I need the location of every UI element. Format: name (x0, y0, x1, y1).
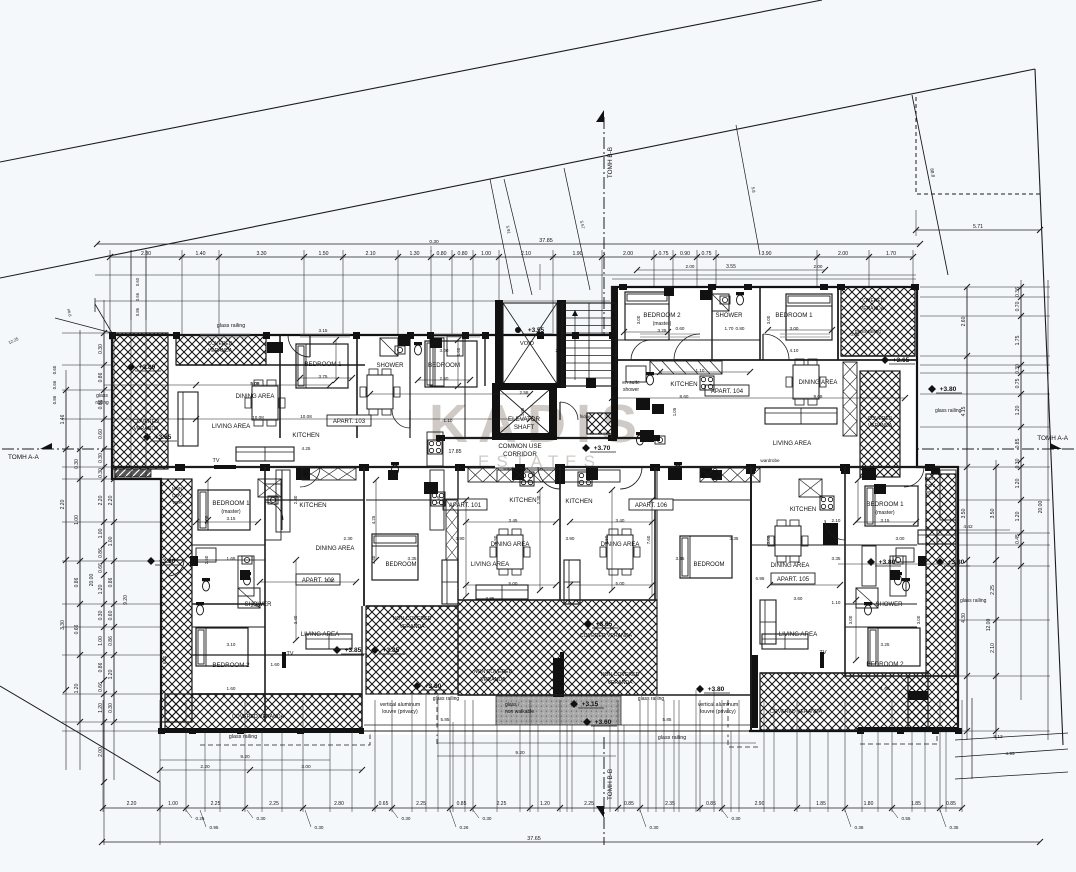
svg-text:2.25: 2.25 (416, 801, 426, 807)
svg-text:glass railing: glass railing (960, 598, 987, 604)
svg-text:glass railing: glass railing (935, 408, 962, 414)
svg-text:1.40: 1.40 (195, 251, 205, 257)
svg-text:1.10: 1.10 (832, 600, 841, 605)
svg-text:+3.80: +3.80 (159, 558, 176, 565)
svg-text:0.30: 0.30 (315, 825, 324, 830)
svg-text:APART. 101: APART. 101 (449, 503, 482, 509)
svg-text:LIVING AREA: LIVING AREA (471, 561, 510, 568)
svg-text:9.20: 9.20 (123, 595, 129, 605)
svg-text:0.30: 0.30 (98, 344, 104, 354)
svg-text:KITCHEN: KITCHEN (299, 502, 326, 509)
svg-text:VERANDA: VERANDA (208, 348, 233, 354)
svg-text:8.60: 8.60 (680, 394, 689, 399)
svg-text:3.35: 3.35 (730, 536, 739, 541)
svg-text:COVERED: COVERED (868, 416, 893, 422)
svg-text:3.90: 3.90 (761, 251, 771, 257)
svg-text:2.00: 2.00 (838, 251, 848, 257)
svg-text:1.60: 1.60 (881, 686, 890, 691)
svg-text:3.60: 3.60 (794, 596, 803, 601)
svg-text:0.86: 0.86 (74, 577, 80, 587)
svg-text:VERANDA: VERANDA (868, 423, 893, 429)
svg-text:APART. 105: APART. 105 (777, 577, 810, 583)
svg-text:1.60: 1.60 (456, 347, 461, 356)
svg-text:0.66: 0.66 (74, 624, 80, 634)
svg-text:0.85: 0.85 (706, 801, 716, 807)
svg-text:1.95: 1.95 (520, 407, 525, 416)
svg-text:6.20: 6.20 (162, 655, 167, 664)
svg-text:20.00: 20.00 (1038, 501, 1044, 514)
svg-text:louvre (privacy): louvre (privacy) (700, 709, 736, 715)
svg-text:COMMON USE: COMMON USE (498, 443, 541, 450)
svg-text:0.85: 0.85 (946, 801, 956, 807)
svg-text:3.75: 3.75 (319, 374, 328, 379)
svg-text:6.95: 6.95 (756, 576, 765, 581)
svg-text:KITCHEN: KITCHEN (670, 381, 697, 388)
svg-text:1.20: 1.20 (540, 801, 550, 807)
svg-text:0.30: 0.30 (429, 239, 439, 245)
svg-text:0.85: 0.85 (1015, 438, 1021, 448)
svg-text:ΤΟΜΗ Α-Α: ΤΟΜΗ Α-Α (8, 454, 40, 461)
svg-text:3.15: 3.15 (319, 328, 328, 333)
svg-text:2.30: 2.30 (344, 536, 353, 541)
svg-text:3.15: 3.15 (227, 516, 236, 521)
svg-text:1.00: 1.00 (98, 528, 104, 538)
svg-text:BEDROOM 2: BEDROOM 2 (866, 661, 904, 668)
svg-text:1.20: 1.20 (74, 683, 80, 693)
svg-text:0.66: 0.66 (98, 563, 104, 573)
svg-text:2.30: 2.30 (536, 495, 541, 504)
svg-text:0.36: 0.36 (1015, 287, 1021, 297)
svg-text:VERANDA: VERANDA (480, 677, 506, 683)
svg-text:5.08: 5.08 (251, 381, 260, 386)
svg-text:3.35: 3.35 (676, 556, 685, 561)
svg-text:0.66: 0.66 (52, 380, 57, 389)
svg-text:SHOWER: SHOWER (876, 602, 904, 608)
svg-text:0.35: 0.35 (950, 825, 959, 830)
svg-text:0.60: 0.60 (135, 277, 140, 286)
svg-text:4.42: 4.42 (963, 524, 973, 530)
svg-text:1.85: 1.85 (816, 801, 826, 807)
svg-text:1.05: 1.05 (672, 407, 677, 416)
svg-text:COVERED VERANDA: COVERED VERANDA (232, 714, 285, 720)
svg-text:+3.80: +3.80 (940, 386, 957, 393)
svg-text:1.00: 1.00 (74, 515, 80, 525)
svg-text:VERANDA: VERANDA (399, 624, 425, 630)
svg-text:0.30: 0.30 (650, 825, 659, 830)
svg-text:3.15: 3.15 (881, 518, 890, 523)
svg-text:3.00: 3.00 (766, 315, 771, 324)
svg-text:KITCHEN: KITCHEN (292, 432, 319, 439)
svg-text:SHOWER: SHOWER (377, 363, 405, 369)
svg-text:COVERED VERANDA: COVERED VERANDA (580, 633, 633, 639)
svg-text:glass railing: glass railing (658, 735, 686, 741)
svg-text:2.40: 2.40 (251, 603, 260, 608)
svg-text:0.86: 0.86 (52, 395, 57, 404)
svg-text:1.85: 1.85 (911, 801, 921, 807)
svg-text:0.80: 0.80 (457, 251, 467, 257)
svg-text:1.60: 1.60 (271, 662, 280, 667)
svg-text:glass /: glass / (505, 702, 520, 708)
svg-text:2.50: 2.50 (436, 495, 441, 504)
svg-text:2.35: 2.35 (665, 801, 675, 807)
svg-text:2.25: 2.25 (497, 801, 507, 807)
svg-text:1.46: 1.46 (60, 414, 66, 424)
svg-text:DINING AREA: DINING AREA (799, 380, 838, 386)
svg-text:3.10: 3.10 (227, 642, 236, 647)
svg-text:3.55: 3.55 (726, 264, 736, 270)
svg-text:12.00: 12.00 (986, 619, 992, 632)
svg-text:+3.85: +3.85 (383, 647, 400, 654)
svg-text:BEDROOM 1: BEDROOM 1 (212, 500, 250, 507)
svg-text:0.30: 0.30 (98, 453, 104, 463)
svg-text:0.66: 0.66 (98, 399, 104, 409)
svg-text:0.86: 0.86 (98, 662, 104, 672)
svg-text:3.35: 3.35 (832, 556, 841, 561)
svg-text:3.40: 3.40 (293, 615, 298, 624)
svg-text:0.30: 0.30 (98, 610, 104, 620)
svg-text:0.75: 0.75 (1015, 378, 1021, 388)
svg-text:10.08: 10.08 (252, 415, 264, 420)
svg-text:BEDROOM: BEDROOM (385, 562, 416, 568)
svg-text:4.25: 4.25 (371, 515, 376, 524)
svg-text:CORRIDOR: CORRIDOR (503, 451, 537, 458)
svg-text:0.86: 0.86 (135, 307, 140, 316)
svg-text:0.30: 0.30 (257, 816, 266, 821)
svg-text:BEDROOM 1: BEDROOM 1 (775, 312, 813, 319)
svg-text:glass railing: glass railing (638, 696, 665, 702)
svg-text:2.00: 2.00 (623, 251, 633, 257)
svg-text:3.00: 3.00 (301, 764, 311, 770)
svg-text:1.80: 1.80 (864, 801, 874, 807)
svg-text:3.40: 3.40 (371, 555, 376, 564)
svg-text:0.70: 0.70 (1015, 301, 1021, 311)
svg-text:5.85: 5.85 (441, 717, 450, 722)
svg-text:glass railing: glass railing (229, 734, 257, 740)
svg-text:0.65: 0.65 (379, 801, 389, 807)
svg-text:2.25: 2.25 (269, 801, 279, 807)
svg-text:1.50: 1.50 (318, 251, 328, 257)
svg-text:0.30: 0.30 (74, 459, 80, 469)
svg-text:wardrobe: wardrobe (760, 458, 780, 463)
svg-text:glass railing: glass railing (433, 696, 460, 702)
svg-text:1.20: 1.20 (1015, 478, 1021, 488)
svg-text:LIVING AREA: LIVING AREA (773, 440, 812, 447)
svg-text:5.85: 5.85 (663, 717, 672, 722)
svg-text:7.60: 7.60 (646, 535, 651, 544)
svg-text:3.90: 3.90 (456, 536, 465, 541)
svg-text:37.85: 37.85 (539, 238, 553, 244)
svg-text:3.50: 3.50 (961, 508, 967, 518)
svg-text:vertical aluminum: vertical aluminum (698, 702, 738, 708)
svg-text:1.20: 1.20 (1015, 511, 1021, 521)
svg-text:ΤΟΜΗ Β-Β: ΤΟΜΗ Β-Β (607, 147, 614, 178)
svg-text:4.25: 4.25 (302, 446, 311, 451)
svg-text:BEDROOM 2: BEDROOM 2 (643, 312, 681, 319)
svg-text:DINING AREA: DINING AREA (316, 546, 355, 552)
svg-text:(master): (master) (221, 509, 241, 515)
svg-text:3.00: 3.00 (790, 326, 799, 331)
svg-text:0.30: 0.30 (108, 703, 114, 713)
svg-text:BEDROOM: BEDROOM (693, 562, 724, 568)
svg-text:0.86: 0.86 (98, 548, 104, 558)
svg-text:LIVING AREA: LIVING AREA (212, 423, 251, 430)
svg-text:louvre (privacy): louvre (privacy) (382, 709, 418, 715)
svg-text:0.80: 0.80 (736, 326, 745, 331)
svg-text:2.00: 2.00 (814, 264, 823, 269)
svg-text:2.30: 2.30 (293, 495, 298, 504)
svg-text:3.25: 3.25 (881, 642, 890, 647)
svg-text:3.30: 3.30 (326, 578, 335, 583)
svg-text:4.10: 4.10 (790, 348, 799, 353)
svg-text:0.66: 0.66 (135, 292, 140, 301)
svg-text:1.10: 1.10 (696, 368, 705, 373)
svg-text:3.40: 3.40 (616, 518, 625, 523)
svg-text:glass: glass (96, 393, 108, 399)
svg-text:0.86: 0.86 (98, 372, 104, 382)
svg-text:1.60: 1.60 (227, 686, 236, 691)
svg-text:5.71: 5.71 (973, 224, 983, 230)
svg-text:en suite: en suite (622, 380, 640, 386)
svg-text:3.00: 3.00 (916, 615, 921, 624)
svg-text:1.10: 1.10 (444, 418, 453, 423)
svg-text:17.85: 17.85 (449, 449, 462, 455)
svg-text:APART. 106: APART. 106 (635, 503, 668, 509)
svg-text:1.00: 1.00 (481, 251, 491, 257)
svg-text:TV: TV (287, 651, 294, 657)
svg-text:VERANDA: VERANDA (607, 680, 633, 686)
svg-text:2.10: 2.10 (365, 251, 375, 257)
svg-text:+3.80: +3.80 (425, 683, 442, 690)
svg-text:0.55: 0.55 (902, 816, 911, 821)
svg-text:9.12: 9.12 (993, 734, 1003, 740)
svg-text:ΤΟΜΗ Β-Β: ΤΟΜΗ Β-Β (607, 769, 614, 800)
svg-text:1.00: 1.00 (168, 801, 178, 807)
svg-text:KITCHEN: KITCHEN (509, 497, 536, 504)
svg-text:2.10: 2.10 (832, 518, 841, 523)
svg-text:1.00: 1.00 (108, 536, 114, 546)
svg-text:4.15: 4.15 (961, 406, 967, 416)
svg-text:+3.65: +3.65 (893, 357, 910, 364)
svg-text:2.58: 2.58 (556, 348, 565, 353)
svg-text:3.90: 3.90 (566, 536, 575, 541)
svg-text:6.50: 6.50 (493, 535, 498, 544)
svg-text:shower: shower (623, 387, 639, 393)
svg-text:NON: NON (925, 476, 936, 482)
svg-text:2.60: 2.60 (204, 555, 209, 564)
svg-text:0.60: 0.60 (52, 365, 57, 374)
svg-text:0.85: 0.85 (624, 801, 634, 807)
svg-text:0.86: 0.86 (108, 636, 114, 646)
svg-text:0.26: 0.26 (460, 825, 469, 830)
svg-text:2.60: 2.60 (961, 316, 967, 326)
svg-text:4.99: 4.99 (1005, 751, 1015, 757)
svg-text:APART. 104: APART. 104 (711, 389, 744, 395)
svg-text:COV: COV (925, 483, 936, 489)
svg-text:0.36: 0.36 (855, 825, 864, 830)
svg-text:+3.70: +3.70 (594, 445, 611, 452)
svg-text:COV: COV (172, 493, 183, 499)
svg-text:1.70: 1.70 (886, 251, 896, 257)
svg-text:SHAFT: SHAFT (514, 424, 535, 431)
svg-text:3.85: 3.85 (486, 596, 495, 601)
svg-text:0.45: 0.45 (1015, 534, 1021, 544)
svg-text:3.00: 3.00 (848, 615, 853, 624)
svg-text:0.30: 0.30 (483, 816, 492, 821)
svg-text:+3.15: +3.15 (582, 701, 599, 708)
svg-text:DINING AREA: DINING AREA (771, 563, 810, 569)
svg-text:0.86: 0.86 (108, 577, 114, 587)
svg-text:3.25: 3.25 (658, 328, 667, 333)
svg-text:+3.65: +3.65 (596, 621, 613, 628)
svg-text:NON COVERED: NON COVERED (474, 669, 513, 675)
svg-text:BEDROOM 1: BEDROOM 1 (866, 501, 904, 508)
svg-text:APART. 103: APART. 103 (333, 419, 366, 425)
svg-text:2.20: 2.20 (200, 764, 210, 770)
svg-text:3.00: 3.00 (896, 536, 905, 541)
svg-text:2.58: 2.58 (520, 390, 529, 395)
svg-text:0.66: 0.66 (98, 682, 104, 692)
svg-text:2.20: 2.20 (60, 499, 66, 509)
svg-text:3.50: 3.50 (990, 508, 996, 518)
svg-text:0.80: 0.80 (436, 251, 446, 257)
svg-text:20.00: 20.00 (89, 574, 95, 587)
svg-text:3.00: 3.00 (766, 535, 771, 544)
svg-text:fridge: fridge (580, 414, 591, 419)
svg-text:1.90: 1.90 (572, 251, 582, 257)
svg-text:1.65: 1.65 (227, 556, 236, 561)
svg-text:0.75: 0.75 (658, 251, 668, 257)
svg-text:3.30: 3.30 (256, 251, 266, 257)
svg-text:9.08: 9.08 (814, 394, 823, 399)
svg-text:glass railing: glass railing (217, 323, 245, 329)
svg-text:KITCHEN: KITCHEN (565, 498, 592, 505)
svg-text:3.30: 3.30 (60, 620, 66, 630)
svg-text:VER: VER (925, 490, 935, 496)
svg-text:1.20: 1.20 (98, 584, 104, 594)
svg-text:0.30: 0.30 (1015, 364, 1021, 374)
svg-text:2.10: 2.10 (990, 643, 996, 653)
svg-text:9.20: 9.20 (515, 750, 525, 756)
svg-text:BEDROOM 1: BEDROOM 1 (304, 361, 342, 368)
svg-text:2.25: 2.25 (990, 585, 996, 595)
svg-text:COVERED VERANDA: COVERED VERANDA (770, 709, 823, 715)
svg-text:2.80: 2.80 (334, 801, 344, 807)
svg-text:VOID: VOID (520, 341, 534, 347)
svg-text:NON COVERED: NON COVERED (393, 616, 432, 622)
svg-text:3.45: 3.45 (509, 518, 518, 523)
svg-text:37.65: 37.65 (527, 836, 541, 842)
svg-text:2.20: 2.20 (127, 801, 137, 807)
svg-text:SHOWER: SHOWER (716, 313, 744, 319)
svg-text:+3.80: +3.80 (948, 559, 965, 566)
svg-text:NON COVERED: NON COVERED (601, 672, 640, 678)
svg-text:VER: VER (172, 500, 182, 506)
svg-text:DINING AREA: DINING AREA (236, 394, 275, 400)
svg-text:5.00: 5.00 (616, 581, 625, 586)
svg-text:NON: NON (172, 486, 183, 492)
svg-text:2.20: 2.20 (108, 495, 114, 505)
svg-text:2.60: 2.60 (440, 376, 449, 381)
svg-text:0.60: 0.60 (676, 326, 685, 331)
svg-text:1.75: 1.75 (1015, 335, 1021, 345)
svg-text:0.60: 0.60 (108, 610, 114, 620)
svg-text:COVERED: COVERED (208, 341, 233, 347)
svg-text:10.08: 10.08 (300, 414, 312, 419)
svg-text:VERANDA: VERANDA (860, 306, 885, 312)
svg-text:0.30: 0.30 (402, 816, 411, 821)
svg-text:+3.80: +3.80 (139, 364, 156, 371)
svg-text:0.95: 0.95 (210, 825, 219, 830)
svg-text:2.20: 2.20 (98, 495, 104, 505)
svg-text:2.25: 2.25 (211, 801, 221, 807)
svg-text:2.90: 2.90 (755, 801, 765, 807)
svg-text:3.00: 3.00 (440, 348, 449, 353)
svg-text:1.30: 1.30 (409, 251, 419, 257)
svg-text:1.20: 1.20 (1015, 405, 1021, 415)
svg-text:+3.65: +3.65 (155, 434, 172, 441)
svg-text:9.20: 9.20 (240, 754, 250, 760)
svg-text:0.30: 0.30 (732, 816, 741, 821)
svg-text:(master): (master) (875, 510, 895, 516)
svg-text:TV: TV (213, 458, 220, 464)
svg-text:1.20: 1.20 (108, 669, 114, 679)
svg-text:COVERED: COVERED (860, 298, 885, 304)
svg-text:1.00: 1.00 (98, 636, 104, 646)
svg-text:2.25: 2.25 (584, 801, 594, 807)
svg-text:3.08: 3.08 (204, 515, 209, 524)
svg-text:0.90: 0.90 (680, 251, 690, 257)
svg-text:0.60: 0.60 (98, 429, 104, 439)
svg-text:vertical aluminum: vertical aluminum (380, 702, 420, 708)
svg-text:3.35: 3.35 (408, 556, 417, 561)
svg-text:5.00: 5.00 (509, 581, 518, 586)
svg-text:+3.60: +3.60 (595, 719, 612, 726)
svg-text:3.00: 3.00 (636, 315, 641, 324)
svg-text:4.30: 4.30 (961, 613, 967, 623)
svg-text:+3.80: +3.80 (708, 686, 725, 693)
svg-text:+3.85: +3.85 (345, 647, 362, 654)
svg-text:0.95: 0.95 (851, 332, 860, 337)
svg-text:ΤΟΜΗ Α-Α: ΤΟΜΗ Α-Α (1037, 435, 1069, 442)
svg-text:6.50: 6.50 (604, 535, 609, 544)
svg-text:2.00: 2.00 (686, 264, 695, 269)
svg-text:KITCHEN: KITCHEN (790, 507, 816, 513)
svg-text:0.30: 0.30 (98, 468, 104, 478)
svg-text:1.70: 1.70 (725, 326, 734, 331)
svg-text:0.75: 0.75 (701, 251, 711, 257)
